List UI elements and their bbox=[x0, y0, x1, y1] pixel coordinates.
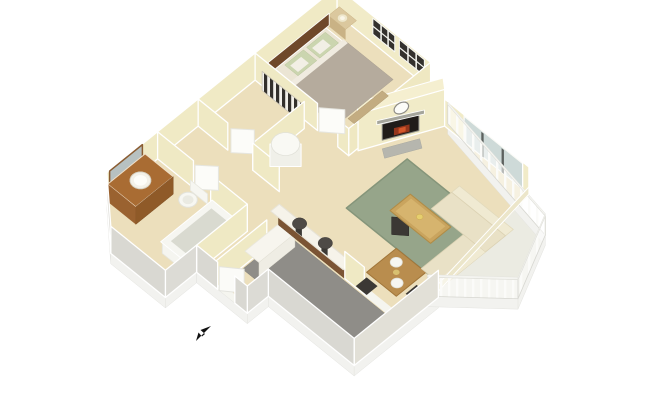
water-heater-top bbox=[271, 133, 299, 156]
floor-plan-3d-render bbox=[0, 0, 650, 420]
coffee-table-candle bbox=[416, 214, 423, 219]
dining-centerpiece bbox=[393, 270, 400, 275]
dining-plate-2 bbox=[391, 278, 403, 288]
closet-door bbox=[231, 129, 254, 154]
bedroom-door bbox=[319, 108, 345, 134]
bar-stool-1-seat bbox=[292, 218, 306, 229]
lamp-shade bbox=[340, 16, 345, 20]
dining-plate-1 bbox=[390, 257, 402, 267]
bar-stool-2-seat bbox=[318, 237, 332, 248]
floorplan-stage bbox=[0, 0, 650, 420]
balcony-railing-south bbox=[427, 277, 517, 299]
vanity-sink-basin bbox=[134, 175, 147, 186]
toilet-seat bbox=[183, 195, 194, 204]
